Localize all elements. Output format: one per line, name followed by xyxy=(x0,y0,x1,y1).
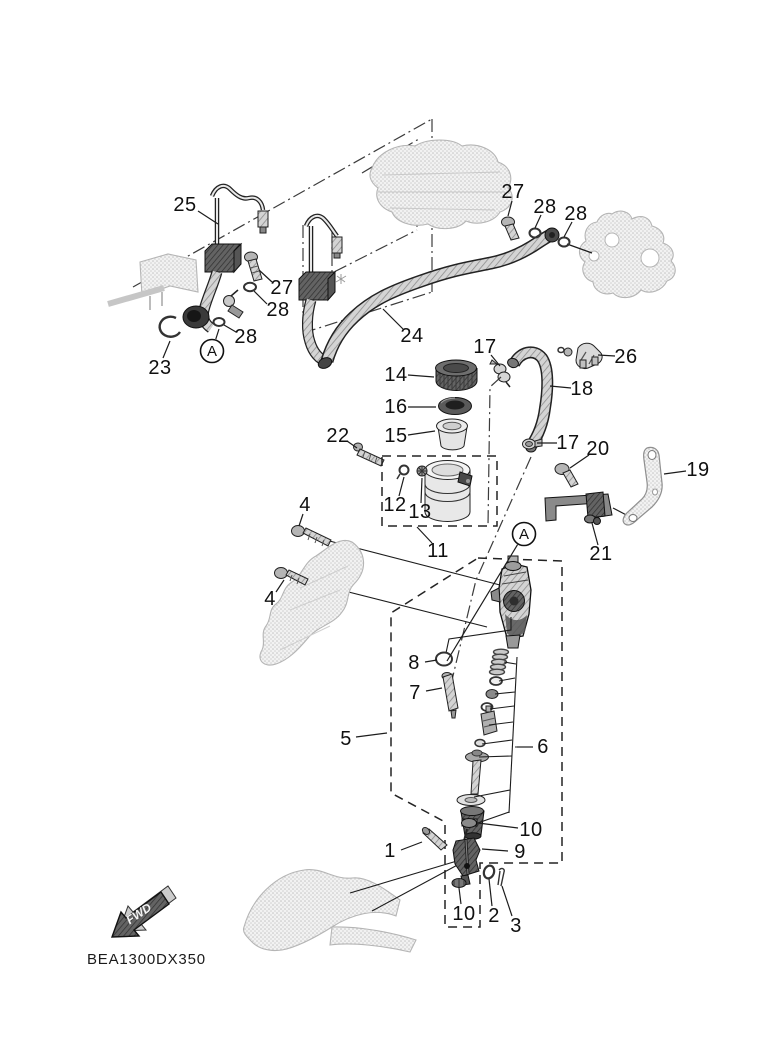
part-callout-20: 20 xyxy=(586,439,609,459)
part-callout-14: 14 xyxy=(384,365,407,385)
part-callout-2: 2 xyxy=(488,906,500,926)
part-callout-17: 17 xyxy=(473,337,496,357)
part-callout-4: 4 xyxy=(299,495,311,515)
part-callout-23: 23 xyxy=(148,358,171,378)
part-callout-25: 25 xyxy=(173,195,196,215)
leader-line xyxy=(421,478,422,503)
part-callout-4: 4 xyxy=(264,589,276,609)
part-callout-1: 1 xyxy=(384,841,396,861)
part-callout-28: 28 xyxy=(234,327,257,347)
part-callout-15: 15 xyxy=(384,426,407,446)
leader-line xyxy=(482,849,508,851)
part-callout-11: 11 xyxy=(427,541,449,561)
part-callout-12: 12 xyxy=(383,495,406,515)
fwd-arrow: FWD xyxy=(112,886,176,937)
part-callout-28: 28 xyxy=(266,300,289,320)
leader-line xyxy=(664,471,686,474)
leader-line xyxy=(356,733,387,737)
part-callout-16: 16 xyxy=(384,397,407,417)
leader-line xyxy=(592,523,598,545)
part-callout-7: 7 xyxy=(409,683,421,703)
part-callout-24: 24 xyxy=(400,326,423,346)
part-callout-8: 8 xyxy=(408,653,420,673)
view-marker-leader xyxy=(216,329,219,339)
leader-line xyxy=(478,823,518,828)
part-callout-26: 26 xyxy=(614,347,637,367)
piston-kit xyxy=(436,649,532,839)
part-callout-19: 19 xyxy=(686,460,709,480)
leader-line xyxy=(489,879,492,906)
part-callout-10: 10 xyxy=(519,820,542,840)
pedal-ghost xyxy=(243,858,467,952)
view-markers: AA xyxy=(201,329,536,661)
leader-line xyxy=(408,431,435,435)
part-callout-18: 18 xyxy=(570,379,593,399)
svg-text:A: A xyxy=(207,343,217,360)
part-callout-6: 6 xyxy=(537,737,549,757)
part-callout-3: 3 xyxy=(510,916,522,936)
part-callout-28: 28 xyxy=(533,197,556,217)
parts-artwork: FWD AA xyxy=(0,0,770,1064)
part-callout-9: 9 xyxy=(514,842,526,862)
part-callout-17: 17 xyxy=(556,433,579,453)
reservoir-assembly xyxy=(354,360,478,522)
leader-line xyxy=(426,688,442,691)
engine-ghost xyxy=(370,140,512,229)
view-marker-A: A xyxy=(201,340,224,363)
clevis-assembly xyxy=(421,819,504,888)
parts-diagram-canvas: FWD AA 252728282324272828172618141615221… xyxy=(0,0,770,1064)
part-callout-27: 27 xyxy=(270,278,293,298)
view-marker-A: A xyxy=(513,523,536,546)
part-callout-10: 10 xyxy=(452,904,475,924)
leader-line xyxy=(163,341,170,358)
leader-line xyxy=(276,580,284,592)
leader-line xyxy=(502,886,512,916)
leader-line xyxy=(459,888,461,904)
diagram-code: BEA1300DX350 xyxy=(87,951,206,968)
part-callout-5: 5 xyxy=(340,729,352,749)
leader-line xyxy=(408,375,434,377)
part-callout-21: 21 xyxy=(589,544,612,564)
part-callout-28: 28 xyxy=(564,204,587,224)
leader-line xyxy=(254,291,267,304)
leader-line xyxy=(401,842,422,850)
svg-text:A: A xyxy=(519,526,529,543)
hose-clamp-26 xyxy=(558,343,602,368)
part-callout-13: 13 xyxy=(408,502,431,522)
leader-line xyxy=(425,660,437,662)
part-callout-22: 22 xyxy=(326,426,349,446)
part-callout-27: 27 xyxy=(501,182,524,202)
